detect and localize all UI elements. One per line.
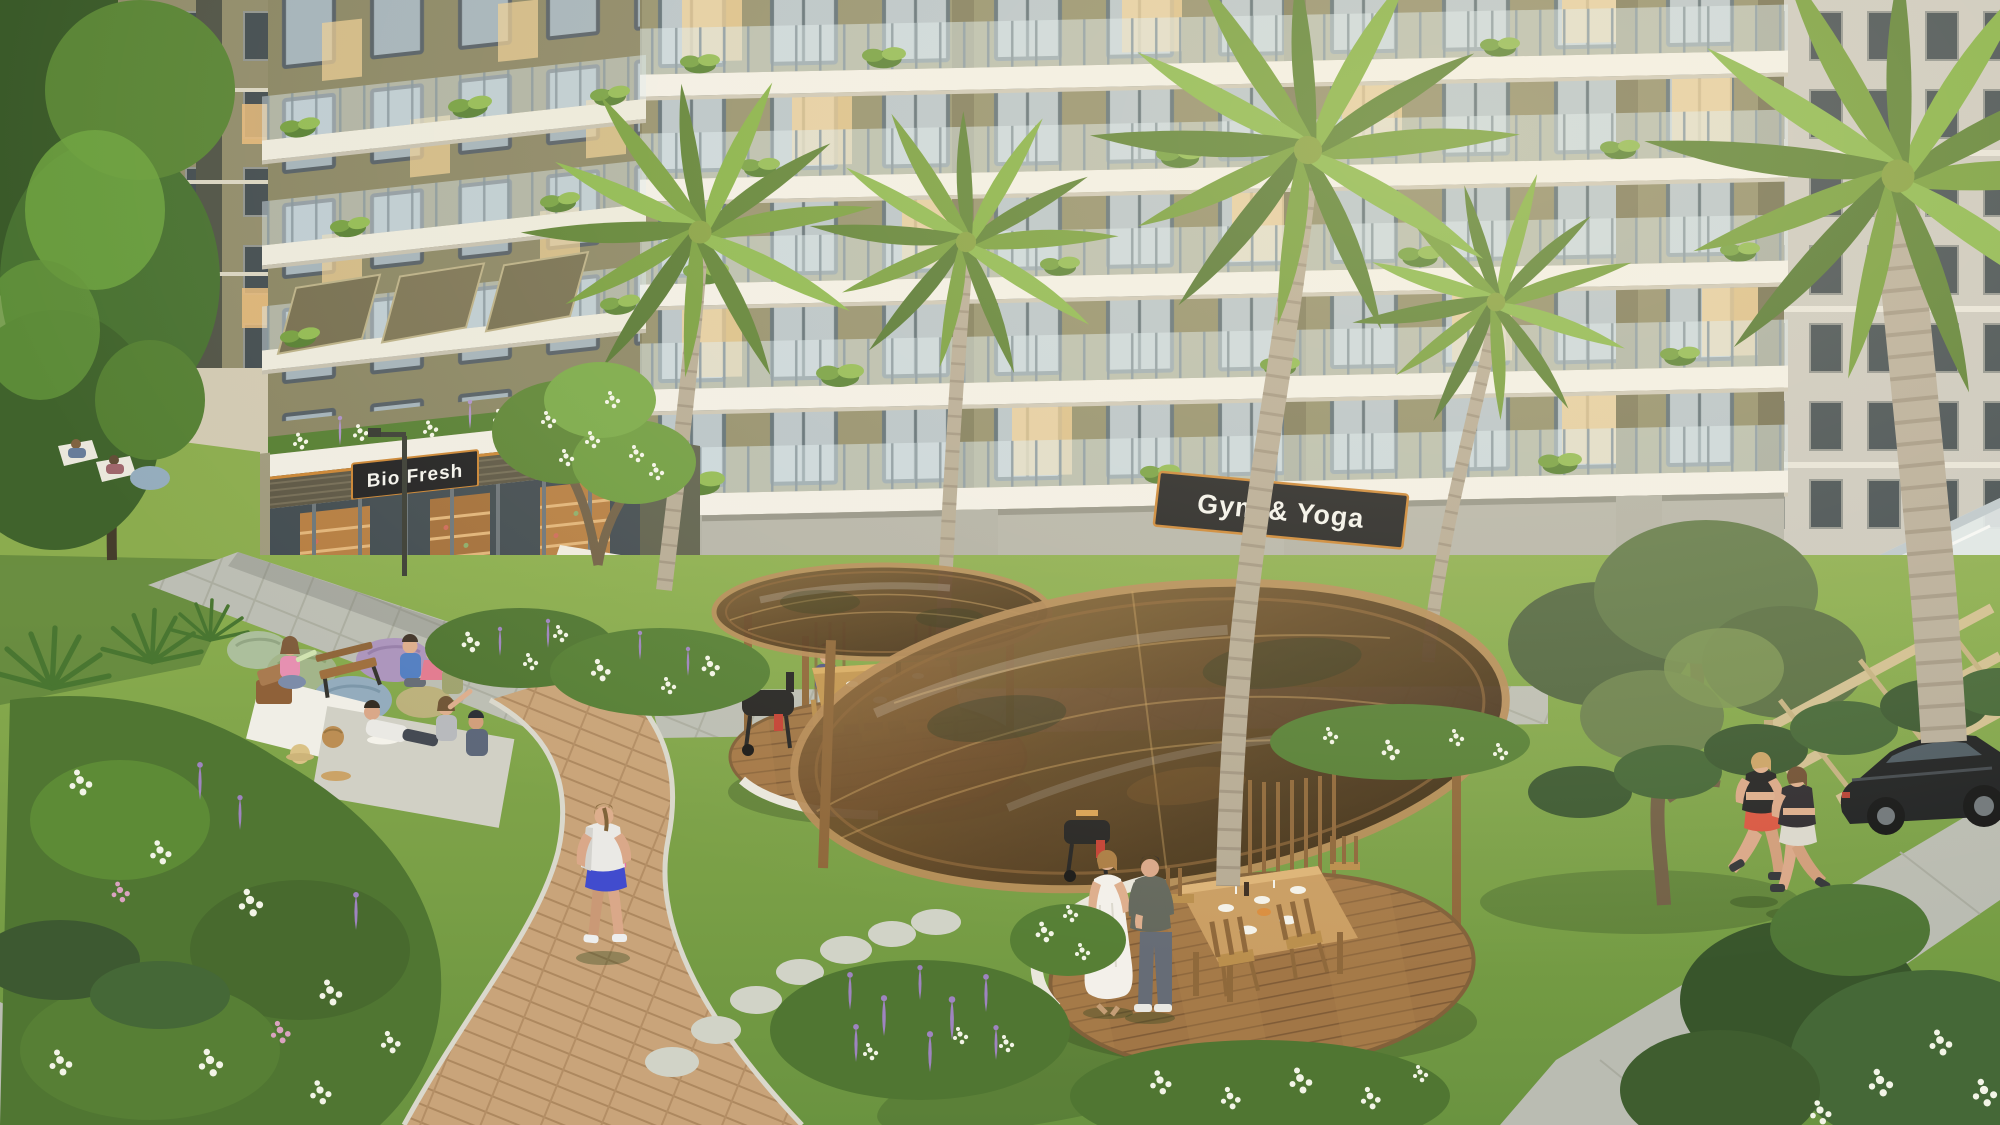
- sunlight-overlay: [0, 0, 2000, 1125]
- architectural-rendering-image: Gym & Yoga Bio Fr: [0, 0, 2000, 1125]
